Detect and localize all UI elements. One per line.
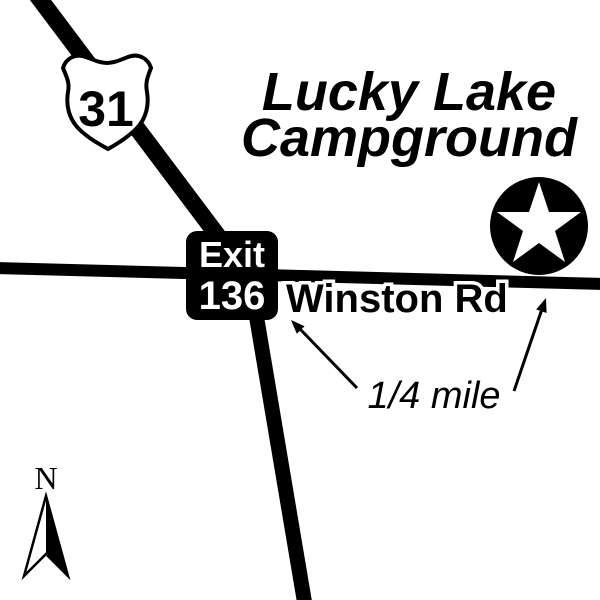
road-label: Winston Rd xyxy=(286,277,508,321)
map-title: Lucky Lake Campground xyxy=(241,62,578,168)
north-compass: N xyxy=(24,460,68,576)
north-arrow-icon xyxy=(24,496,68,576)
distance-arrow-right-icon xyxy=(514,298,547,391)
us31-road-south xyxy=(252,290,305,600)
directions-map: 31 Lucky Lake Campground Exit 136 Winsto… xyxy=(0,0,600,600)
arrow-shaft xyxy=(300,329,357,388)
north-arrow-fill xyxy=(46,496,68,576)
arrow-shaft xyxy=(514,309,542,391)
distance-label: 1/4 mile xyxy=(367,375,500,417)
star-in-circle-icon xyxy=(490,177,588,275)
exit-sign-line2: 136 xyxy=(199,274,266,318)
north-label: N xyxy=(34,460,57,496)
route-number: 31 xyxy=(78,81,134,137)
exit-sign: Exit 136 xyxy=(186,231,278,320)
arrow-head xyxy=(536,298,546,313)
distance-arrow-left-icon xyxy=(291,320,357,388)
map-title-line2: Campground xyxy=(241,108,578,168)
map-graphic: 31 Lucky Lake Campground Exit 136 Winsto… xyxy=(0,0,600,600)
exit-sign-line1: Exit xyxy=(199,234,265,275)
